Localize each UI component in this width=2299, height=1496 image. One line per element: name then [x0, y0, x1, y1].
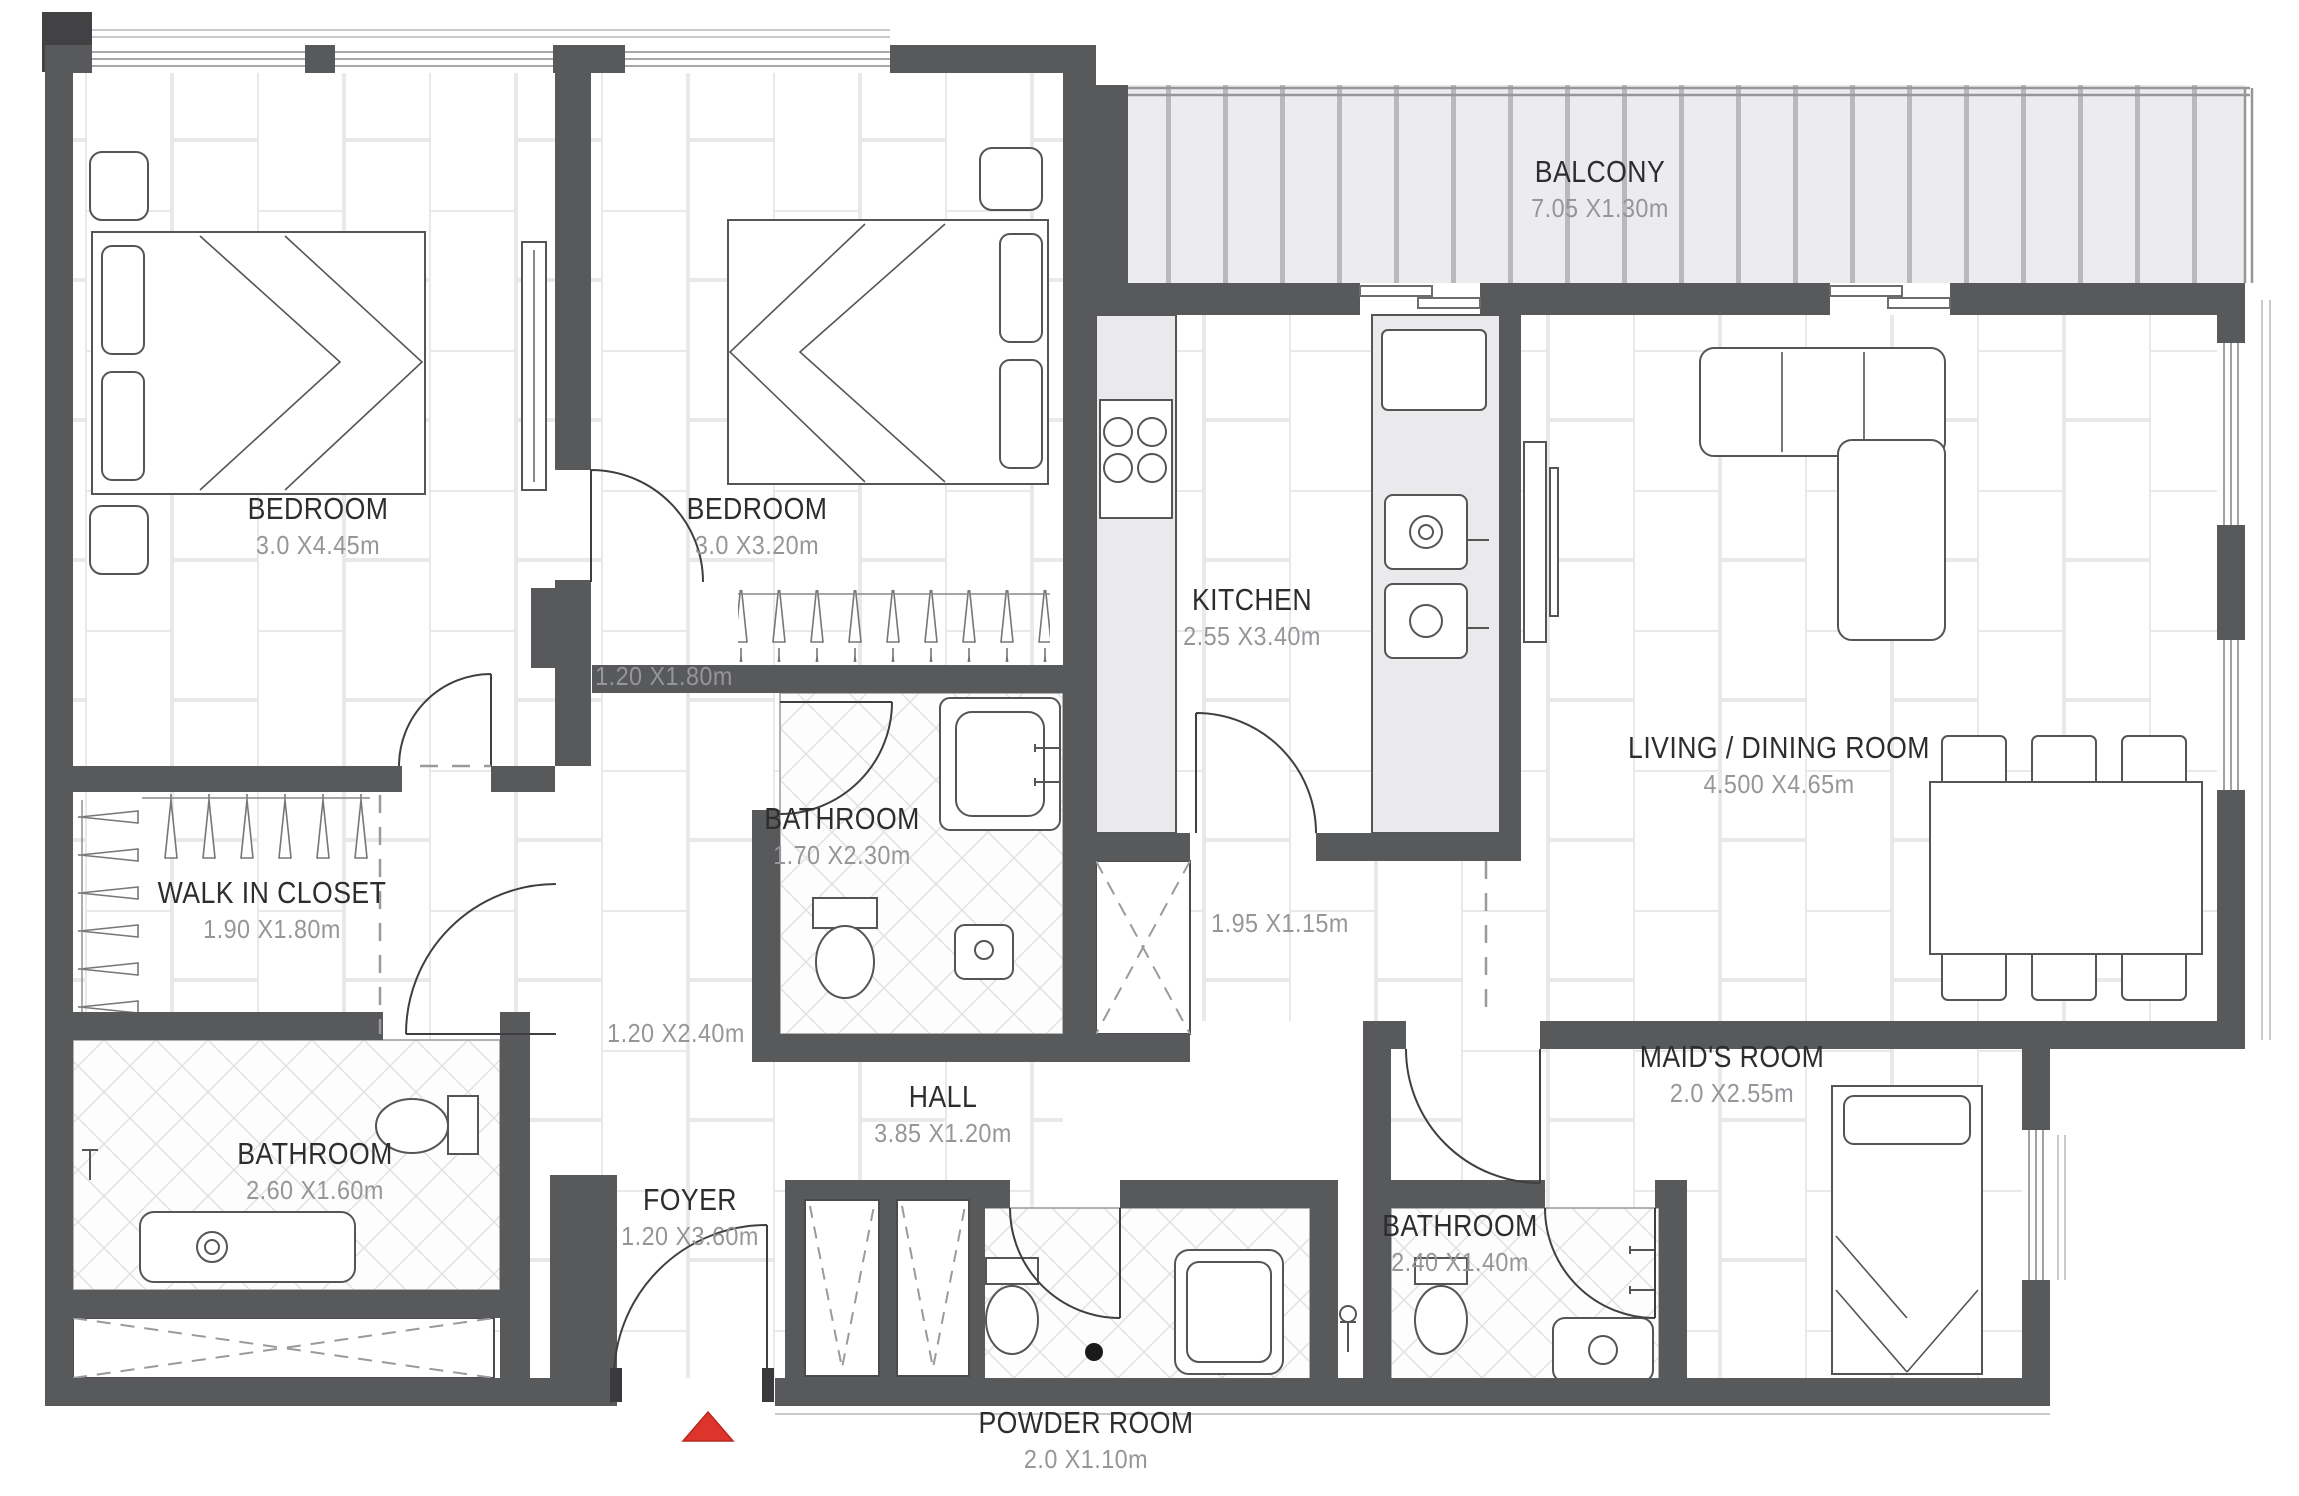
- floor-drain: [1085, 1343, 1103, 1361]
- tv-unit: [1524, 442, 1558, 642]
- bed-maids-room: [1832, 1086, 1982, 1374]
- floor-plan-svg: [0, 0, 2299, 1496]
- kitchen-sink-2: [1385, 584, 1467, 658]
- vanity-sink: [940, 698, 1060, 830]
- balcony-deck: [1128, 85, 2252, 283]
- entry-arrow: [683, 1412, 733, 1441]
- floor-plan-page: BALCONY 7.05 X1.30m BEDROOM 3.0 X4.45m B…: [0, 0, 2299, 1496]
- toilet-tank: [813, 898, 877, 928]
- sink-vanity: [1553, 1318, 1653, 1382]
- maid-top-wall-right: [1540, 1021, 2199, 1049]
- stove: [1100, 400, 1172, 518]
- dining-set: [1930, 736, 2202, 1000]
- shower-vanity: [140, 1212, 355, 1282]
- kitchen-sink-1: [1385, 495, 1467, 569]
- small-sink: [955, 925, 1013, 979]
- toilet-bowl: [1415, 1286, 1467, 1354]
- closet-hangers-bedroom-2: [738, 590, 1050, 662]
- fridge: [1382, 330, 1486, 410]
- toilet-bowl: [376, 1099, 448, 1153]
- bathtub: [1175, 1250, 1283, 1374]
- toilet-bowl: [816, 926, 874, 998]
- toilet-tank: [1415, 1258, 1467, 1284]
- washer-tap: [1340, 1322, 1356, 1352]
- toilet-bowl: [986, 1286, 1038, 1354]
- dining-table: [1930, 782, 2202, 954]
- toilet-tank: [448, 1096, 478, 1154]
